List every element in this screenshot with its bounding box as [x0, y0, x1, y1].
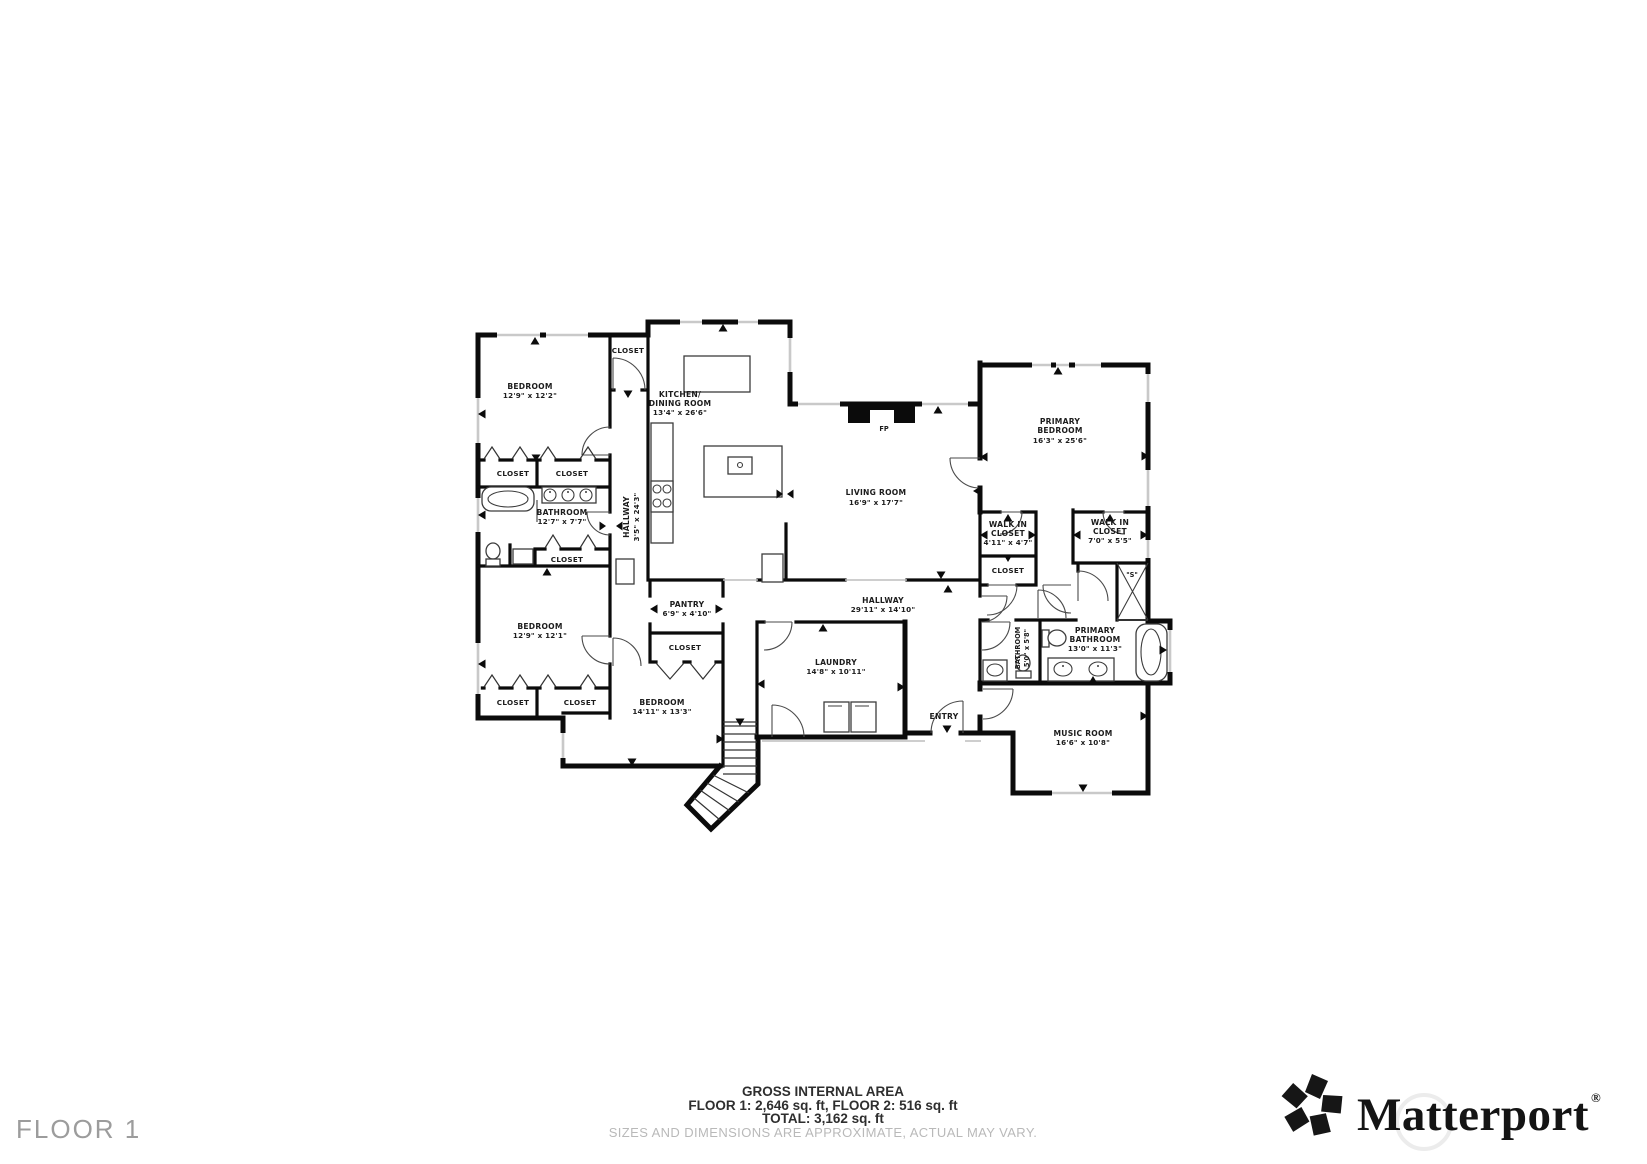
svg-text:PRIMARY: PRIMARY — [1075, 626, 1116, 635]
svg-text:BEDROOM: BEDROOM — [517, 622, 562, 631]
gross-area-title: GROSS INTERNAL AREA — [742, 1084, 904, 1099]
svg-text:PRIMARY: PRIMARY — [1040, 417, 1081, 426]
svg-text:12'7" x 7'7": 12'7" x 7'7" — [538, 517, 587, 526]
svg-text:CLOSET: CLOSET — [991, 529, 1026, 538]
svg-text:16'3" x 25'6": 16'3" x 25'6" — [1033, 436, 1087, 445]
room-label-bathroom-small: BATHROOM 5'0" x 5'8" — [1014, 627, 1031, 669]
svg-text:BATHROOM: BATHROOM — [1014, 627, 1022, 669]
room-label-bedroom-2: BEDROOM 12'9" x 12'1" — [513, 622, 567, 640]
cabinet-2 — [762, 554, 783, 582]
closet-c-label: CLOSET — [497, 698, 530, 707]
svg-text:13'0" x 11'3": 13'0" x 11'3" — [1068, 644, 1122, 653]
hamper — [513, 549, 533, 564]
room-label-bedroom-3: BEDROOM 14'11" x 13'3" — [632, 698, 691, 716]
toilet-3 — [1048, 630, 1066, 646]
svg-text:BATHROOM: BATHROOM — [1070, 635, 1121, 644]
room-label-laundry: LAUNDRY 14'8" x 10'11" — [806, 658, 865, 676]
registered-mark: ® — [1591, 1090, 1601, 1105]
closet-pantry-label: CLOSET — [669, 643, 702, 652]
footer: GROSS INTERNAL AREA FLOOR 1: 2,646 sq. f… — [609, 1084, 1038, 1140]
svg-text:14'11" x 13'3": 14'11" x 13'3" — [632, 707, 691, 716]
svg-text:LIVING ROOM: LIVING ROOM — [846, 488, 907, 497]
svg-text:WALK IN: WALK IN — [1091, 518, 1129, 527]
room-label-primary-bedroom: PRIMARY BEDROOM 16'3" x 25'6" — [1033, 417, 1087, 445]
room-label-hallway-small: HALLWAY 3'5" x 24'3" — [622, 492, 641, 541]
cabinet-1 — [616, 559, 634, 584]
closet-bath-label: CLOSET — [551, 555, 584, 564]
svg-text:WALK IN: WALK IN — [989, 520, 1027, 529]
svg-text:BEDROOM: BEDROOM — [639, 698, 684, 707]
brand: Matterport ® — [1279, 1074, 1601, 1149]
svg-text:DINING ROOM: DINING ROOM — [649, 399, 712, 408]
svg-text:HALLWAY: HALLWAY — [622, 496, 631, 538]
shower-label: "S" — [1126, 571, 1138, 579]
svg-text:12'9" x 12'2": 12'9" x 12'2" — [503, 391, 557, 400]
svg-text:MUSIC ROOM: MUSIC ROOM — [1053, 729, 1112, 738]
total-area: TOTAL: 3,162 sq. ft — [762, 1111, 884, 1126]
svg-text:13'4" x 26'6": 13'4" x 26'6" — [653, 408, 707, 417]
exterior-walls — [478, 322, 1170, 829]
disclaimer: SIZES AND DIMENSIONS ARE APPROXIMATE, AC… — [609, 1125, 1038, 1140]
closet-wic-label: CLOSET — [992, 566, 1025, 575]
svg-text:5'0" x 5'8": 5'0" x 5'8" — [1023, 629, 1031, 667]
room-label-living: LIVING ROOM 16'9" x 17'7" — [846, 488, 907, 507]
svg-text:6'9" x 4'10": 6'9" x 4'10" — [663, 609, 712, 618]
svg-text:BEDROOM: BEDROOM — [1037, 426, 1082, 435]
svg-text:16'6" x 10'8": 16'6" x 10'8" — [1056, 738, 1110, 747]
svg-text:16'9" x 17'7": 16'9" x 17'7" — [849, 498, 903, 507]
floor-selector-label[interactable]: FLOOR 1 — [16, 1114, 141, 1144]
room-label-pantry: PANTRY 6'9" x 4'10" — [663, 600, 712, 618]
fireplace — [848, 403, 915, 423]
svg-text:PANTRY: PANTRY — [670, 600, 705, 609]
svg-text:29'11" x 14'10": 29'11" x 14'10" — [851, 605, 916, 614]
room-label-primary-bathroom: PRIMARY BATHROOM 13'0" x 11'3" — [1068, 626, 1122, 653]
dining-table — [684, 356, 750, 392]
closet-a-label: CLOSET — [497, 469, 530, 478]
closet-b-label: CLOSET — [556, 469, 589, 478]
svg-text:HALLWAY: HALLWAY — [862, 596, 904, 605]
svg-text:BATHROOM: BATHROOM — [537, 508, 588, 517]
room-label-hallway-main: HALLWAY 29'11" x 14'10" — [851, 596, 916, 614]
staircase — [694, 722, 757, 820]
closet-top-label: CLOSET — [612, 346, 645, 355]
floor-plan-canvas: BEDROOM 12'9" x 12'2" CLOSET KITCHEN/ DI… — [0, 0, 1647, 1164]
svg-text:12'9" x 12'1": 12'9" x 12'1" — [513, 631, 567, 640]
svg-text:BEDROOM: BEDROOM — [507, 382, 552, 391]
room-label-bedroom-1: BEDROOM 12'9" x 12'2" — [503, 382, 557, 400]
svg-text:14'8" x 10'11": 14'8" x 10'11" — [806, 667, 865, 676]
fireplace-label: FP — [879, 425, 889, 433]
double-vanity — [1048, 658, 1114, 681]
room-label-bathroom: BATHROOM 12'7" x 7'7" — [537, 508, 588, 526]
svg-text:CLOSET: CLOSET — [1093, 527, 1128, 536]
matterport-wordmark: Matterport — [1357, 1089, 1589, 1141]
room-label-walk-in-closet-2: WALK IN CLOSET 7'0" x 5'5" — [1088, 518, 1132, 545]
svg-text:4'11" x 4'7": 4'11" x 4'7" — [984, 538, 1033, 547]
svg-text:7'0" x 5'5": 7'0" x 5'5" — [1088, 536, 1132, 545]
toilet-1 — [486, 543, 500, 559]
entry-label: ENTRY — [930, 712, 959, 721]
svg-text:KITCHEN/: KITCHEN/ — [659, 390, 701, 399]
svg-text:LAUNDRY: LAUNDRY — [815, 658, 857, 667]
matterport-logo-icon — [1279, 1074, 1347, 1141]
room-label-walk-in-closet-1: WALK IN CLOSET 4'11" x 4'7" — [984, 520, 1033, 547]
svg-text:3'5" x 24'3": 3'5" x 24'3" — [632, 492, 641, 541]
closet-d-label: CLOSET — [564, 698, 597, 707]
room-label-kitchen: KITCHEN/ DINING ROOM 13'4" x 26'6" — [649, 390, 712, 417]
island-sink — [728, 457, 752, 474]
room-label-music: MUSIC ROOM 16'6" x 10'8" — [1053, 729, 1112, 747]
floor-plan-page: BEDROOM 12'9" x 12'2" CLOSET KITCHEN/ DI… — [0, 0, 1647, 1164]
